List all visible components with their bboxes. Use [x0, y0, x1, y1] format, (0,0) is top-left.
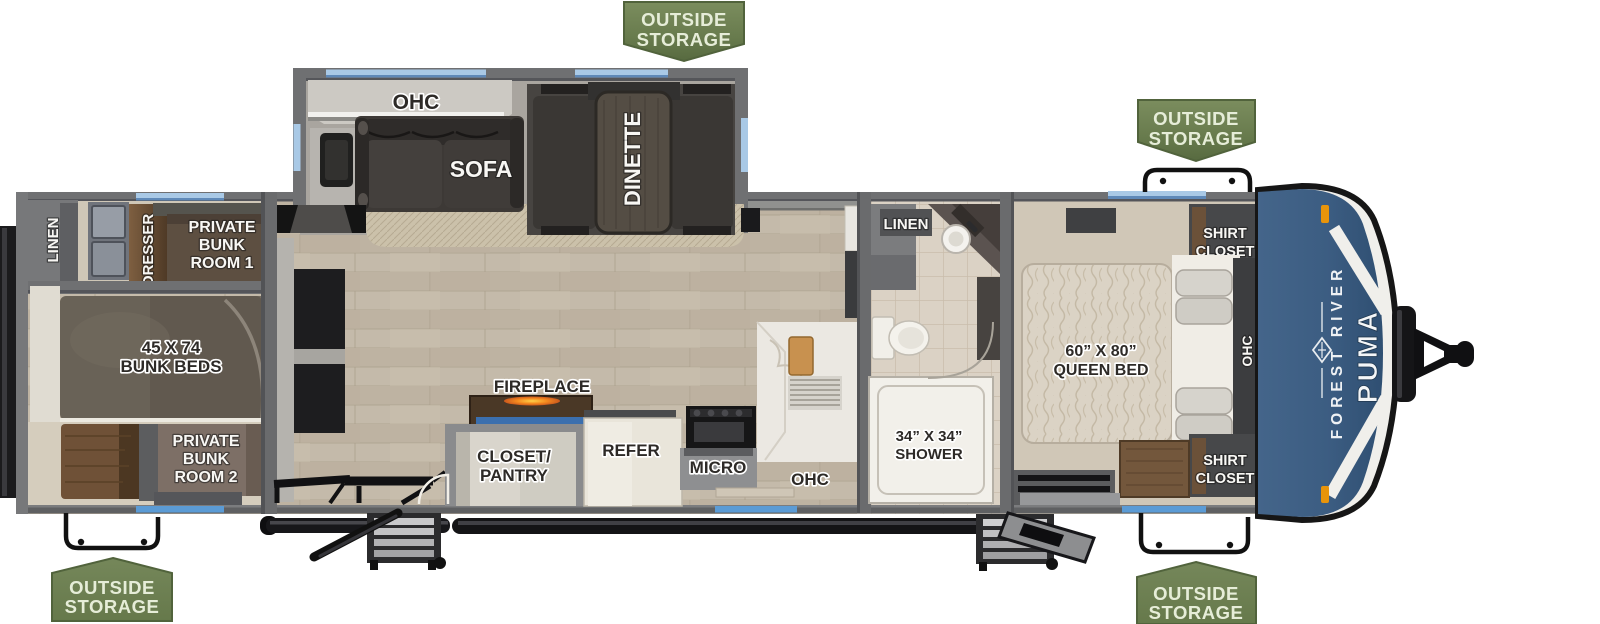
svg-text:FOREST RIVER: FOREST RIVER: [1329, 265, 1346, 440]
svg-text:STORAGE: STORAGE: [1149, 602, 1244, 623]
svg-text:ROOM 1: ROOM 1: [190, 255, 253, 272]
svg-text:REFER: REFER: [602, 441, 660, 460]
svg-text:DINETTE: DINETTE: [620, 112, 645, 206]
svg-text:OHC: OHC: [393, 91, 440, 114]
svg-text:45 X 74: 45 X 74: [142, 338, 201, 357]
svg-text:OUTSIDE: OUTSIDE: [641, 9, 727, 30]
svg-text:OUTSIDE: OUTSIDE: [69, 577, 155, 598]
svg-text:MICRO: MICRO: [690, 458, 747, 477]
svg-text:OUTSIDE: OUTSIDE: [1153, 108, 1239, 129]
svg-text:BUNK: BUNK: [199, 237, 246, 254]
svg-text:SHIRT: SHIRT: [1203, 453, 1247, 469]
svg-text:SHOWER: SHOWER: [895, 446, 963, 463]
svg-text:SHIRT: SHIRT: [1203, 226, 1247, 242]
svg-text:OHC: OHC: [1239, 335, 1255, 366]
svg-text:60” X 80”: 60” X 80”: [1065, 343, 1136, 360]
svg-text:DRESSER: DRESSER: [140, 214, 157, 287]
svg-text:OUTSIDE: OUTSIDE: [1153, 583, 1239, 604]
svg-text:STORAGE: STORAGE: [1149, 128, 1244, 149]
svg-text:34” X 34”: 34” X 34”: [896, 428, 963, 445]
svg-text:LINEN: LINEN: [884, 216, 929, 233]
svg-text:BUNK BEDS: BUNK BEDS: [120, 357, 221, 376]
svg-text:CLOSET/: CLOSET/: [477, 447, 551, 466]
svg-text:STORAGE: STORAGE: [65, 596, 160, 617]
svg-text:PUMA: PUMA: [1352, 309, 1383, 403]
svg-text:PRIVATE: PRIVATE: [173, 433, 240, 450]
svg-text:ROOM 2: ROOM 2: [174, 469, 237, 486]
svg-text:QUEEN BED: QUEEN BED: [1053, 362, 1148, 379]
svg-text:STORAGE: STORAGE: [637, 29, 732, 50]
svg-text:CLOSET: CLOSET: [1196, 471, 1255, 487]
svg-text:SOFA: SOFA: [450, 156, 513, 182]
svg-text:BUNK: BUNK: [183, 451, 230, 468]
svg-text:PRIVATE: PRIVATE: [189, 219, 256, 236]
svg-text:OHC: OHC: [791, 470, 829, 489]
svg-text:FIREPLACE: FIREPLACE: [494, 377, 590, 396]
svg-text:PANTRY: PANTRY: [480, 466, 549, 485]
svg-text:LINEN: LINEN: [45, 218, 62, 263]
